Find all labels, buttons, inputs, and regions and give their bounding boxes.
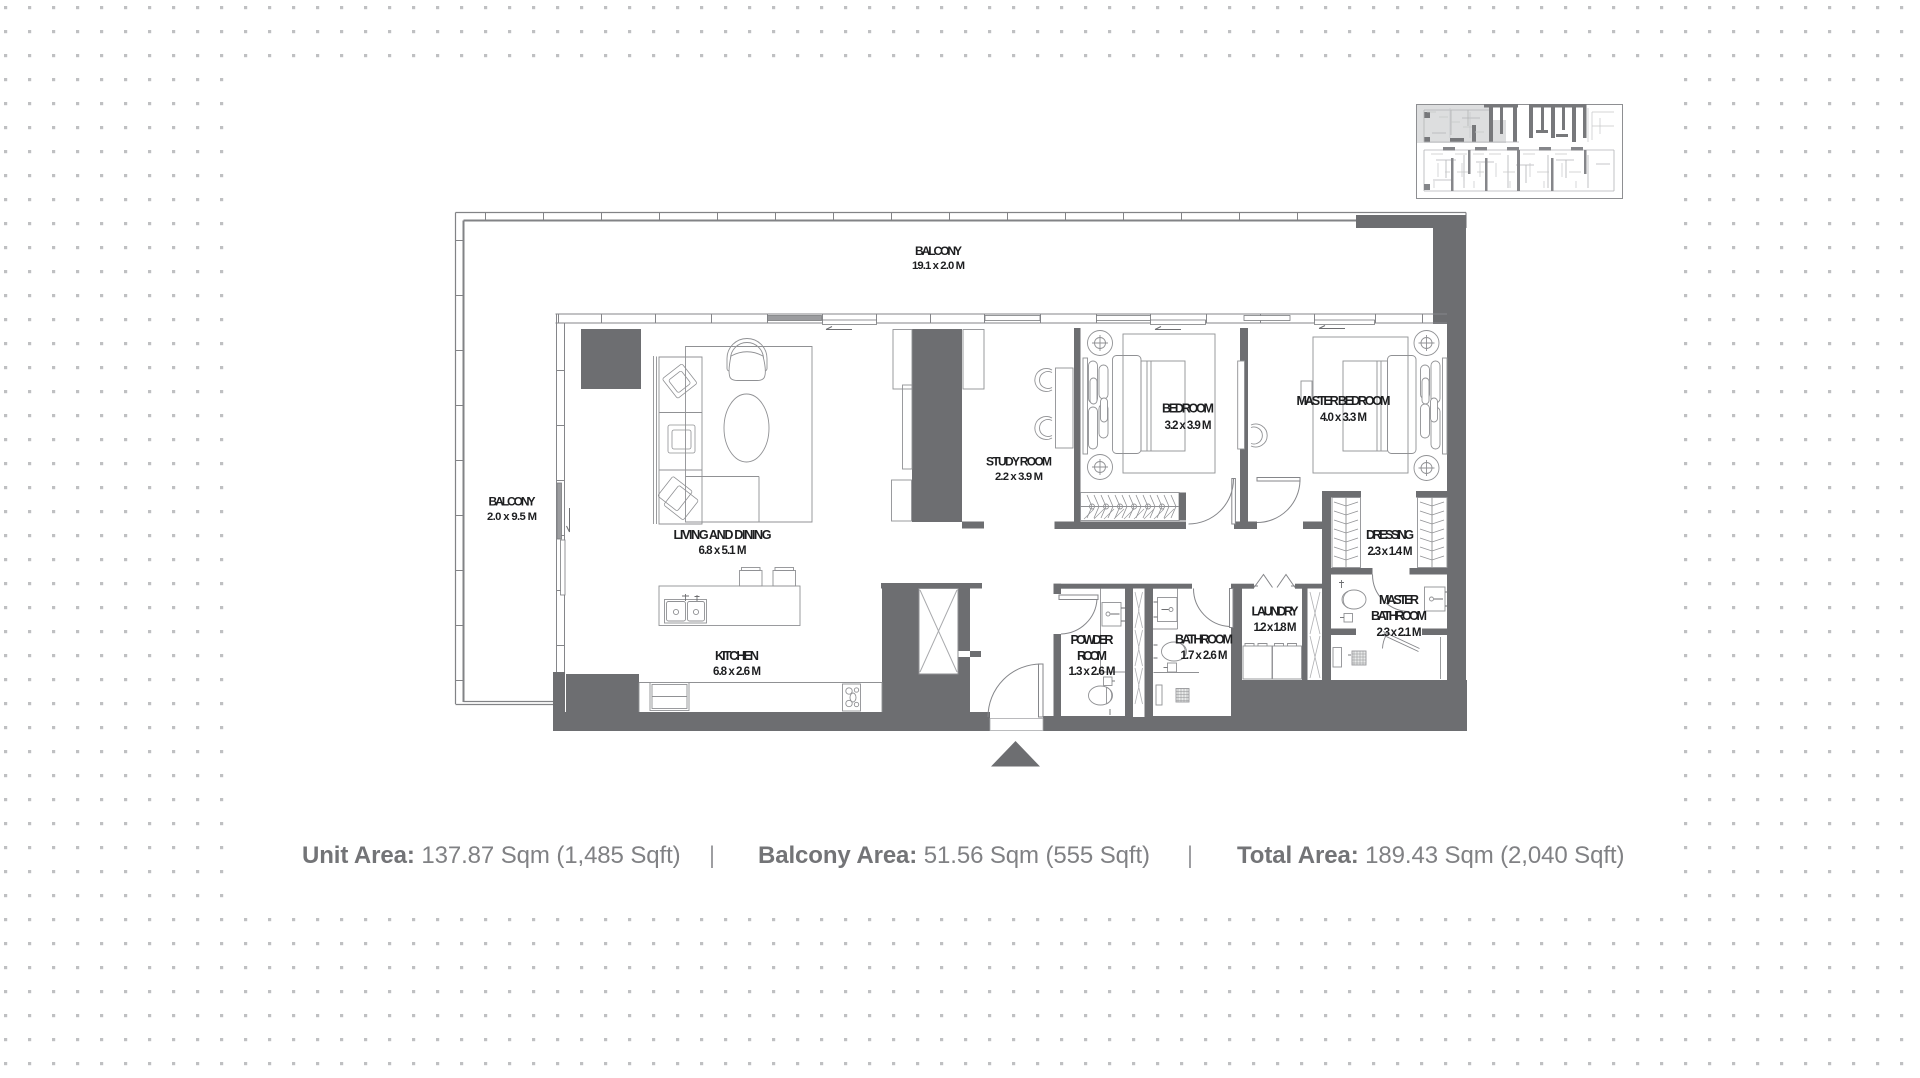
svg-text:|: | (709, 842, 715, 869)
svg-text:KITCHEN: KITCHEN (715, 649, 759, 663)
svg-text:POWDER: POWDER (1071, 633, 1114, 647)
svg-text:2.3 x 1.4 M: 2.3 x 1.4 M (1368, 545, 1413, 558)
svg-text:1.3 x 2.6 M: 1.3 x 2.6 M (1069, 665, 1116, 678)
svg-text:|: | (1187, 842, 1193, 869)
svg-text:6.8 x 2.6 M: 6.8 x 2.6 M (713, 665, 761, 678)
svg-text:LIVING AND DINING: LIVING AND DINING (674, 528, 772, 542)
svg-text:STUDY ROOM: STUDY ROOM (986, 455, 1052, 469)
svg-text:MASTER BEDROOM: MASTER BEDROOM (1297, 394, 1391, 408)
svg-text:6.8 x 5.1 M: 6.8 x 5.1 M (699, 544, 747, 557)
svg-text:2.2 x 3.9 M: 2.2 x 3.9 M (995, 471, 1043, 483)
svg-text:MASTER: MASTER (1379, 593, 1419, 607)
svg-text:BATHROOM: BATHROOM (1371, 609, 1427, 623)
svg-text:BATHROOM: BATHROOM (1175, 633, 1233, 647)
svg-text:3.2 x 3.9 M: 3.2 x 3.9 M (1165, 419, 1212, 432)
svg-text:ROOM: ROOM (1077, 649, 1107, 663)
svg-text:2.0 x 9.5 M: 2.0 x 9.5 M (487, 511, 537, 523)
svg-text:19.1 x 2.0 M: 19.1 x 2.0 M (912, 260, 965, 272)
svg-text:1.7 x 2.6 M: 1.7 x 2.6 M (1181, 649, 1228, 662)
svg-text:BEDROOM: BEDROOM (1162, 402, 1214, 416)
svg-text:2.3 x 2.1 M: 2.3 x 2.1 M (1377, 626, 1422, 639)
svg-text:Total Area: 189.43 Sqm (2,040: Total Area: 189.43 Sqm (2,040 Sqft) (1237, 842, 1624, 869)
svg-text:4.0 x 3.3 M: 4.0 x 3.3 M (1320, 411, 1367, 424)
svg-text:BALCONY: BALCONY (915, 244, 962, 258)
svg-text:DRESSING: DRESSING (1366, 528, 1414, 542)
svg-text:LAUNDRY: LAUNDRY (1252, 605, 1300, 619)
svg-text:BALCONY: BALCONY (489, 495, 536, 509)
svg-text:Unit Area: 137.87 Sqm (1,485 S: Unit Area: 137.87 Sqm (1,485 Sqft) (302, 842, 681, 869)
svg-text:1.2 x 1.8 M: 1.2 x 1.8 M (1254, 621, 1297, 634)
svg-text:Balcony Area: 51.56 Sqm (555 S: Balcony Area: 51.56 Sqm (555 Sqft) (758, 842, 1150, 869)
